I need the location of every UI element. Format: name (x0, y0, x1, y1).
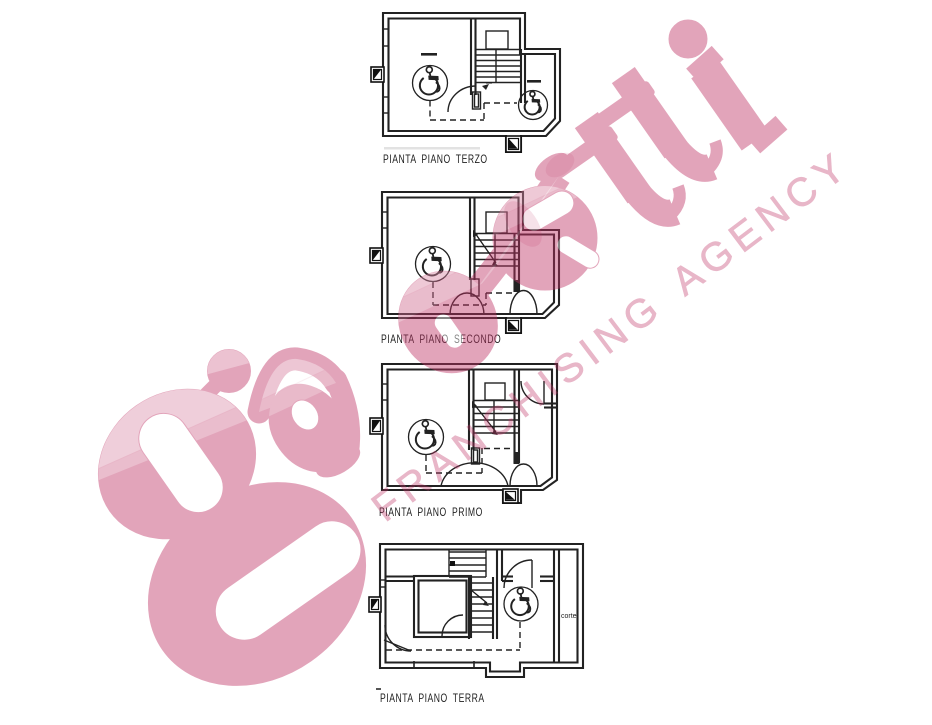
svg-text:corte: corte (561, 613, 577, 620)
svg-text:PIANTA PIANO TERZO: PIANTA PIANO TERZO (383, 154, 488, 166)
svg-text:PIANTA PIANO TERRA: PIANTA PIANO TERRA (380, 693, 485, 705)
